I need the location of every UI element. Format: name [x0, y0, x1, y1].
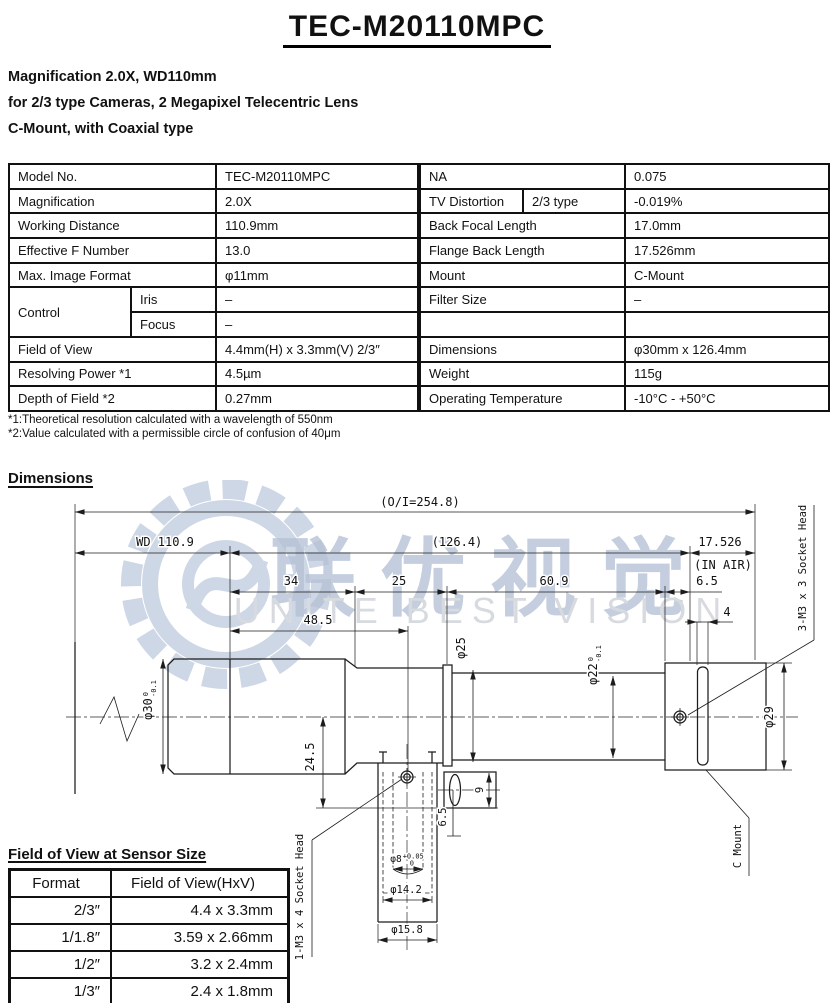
dim-label-60-9: 60.9 — [540, 574, 569, 588]
spec-cell-label: Back Focal Length — [420, 213, 625, 238]
footnotes: *1:Theoretical resolution calculated wit… — [8, 414, 340, 441]
break-symbol — [100, 697, 139, 741]
fov-cell-format: 1/2″ — [10, 951, 112, 978]
fov-header-format: Format — [10, 870, 112, 898]
dim-label-in-air: (IN AIR) — [694, 558, 752, 572]
page-title: TEC-M20110MPC — [283, 10, 551, 48]
spec-cell-label: NA — [420, 164, 625, 189]
spec-cell-label: Dimensions — [420, 337, 625, 362]
dim-label-overall: (O/I=254.8) — [380, 495, 459, 509]
table-row: Filter Size – — [420, 287, 829, 312]
dim-label-24-5: 24.5 — [303, 743, 317, 772]
spec-cell-label: Working Distance — [9, 213, 216, 238]
description-line: Magnification 2.0X, WD110mm — [8, 64, 358, 90]
label-socket-head-1m3: 1-M3 x 4 Socket Head — [294, 834, 306, 960]
dim-label-wd: WD 110.9 — [136, 535, 194, 549]
lens-description: Magnification 2.0X, WD110mm for 2/3 type… — [8, 64, 358, 142]
table-row: Working Distance 110.9mm — [9, 213, 418, 238]
fov-header-fov: Field of View(HxV) — [111, 870, 289, 898]
description-line: for 2/3 type Cameras, 2 Megapixel Telece… — [8, 90, 358, 116]
table-row: 1/1.8″ 3.59 x 2.66mm — [10, 924, 289, 951]
spec-cell-value: 2.0X — [216, 189, 418, 214]
spec-table: Model No. TEC-M20110MPC Magnification 2.… — [8, 163, 826, 412]
fov-cell-format: 1/3″ — [10, 978, 112, 1003]
spec-cell-value: 4.5µm — [216, 362, 418, 387]
table-row: 1/2″ 3.2 x 2.4mm — [10, 951, 289, 978]
table-row: Magnification 2.0X — [9, 189, 418, 214]
spec-table-left: Model No. TEC-M20110MPC Magnification 2.… — [8, 163, 419, 412]
dim-label-48-5: 48.5 — [304, 613, 333, 627]
dim-label-6-5: 6.5 — [696, 574, 718, 588]
spec-cell-value: -10°C - +50°C — [625, 386, 829, 411]
spec-cell-value: 17.0mm — [625, 213, 829, 238]
coaxial-port-side-view — [438, 772, 500, 808]
table-row: 2/3″ 4.4 x 3.3mm — [10, 897, 289, 924]
spec-cell-sublabel: 2/3 type — [523, 189, 625, 214]
spec-cell-value: C-Mount — [625, 263, 829, 288]
table-row: Back Focal Length 17.0mm — [420, 213, 829, 238]
spec-cell-label: Filter Size — [420, 287, 625, 312]
spec-cell-value: 0.27mm — [216, 386, 418, 411]
spec-cell-value: φ30mm x 126.4mm — [625, 337, 829, 362]
spec-cell-value: – — [216, 312, 418, 337]
dim-label-4: 4 — [723, 605, 730, 619]
spec-cell-value: 0.075 — [625, 164, 829, 189]
spec-cell-value: – — [625, 287, 829, 312]
dim-label-dia29: φ29 — [762, 706, 776, 728]
spec-cell-label: Magnification — [9, 189, 216, 214]
table-row: Max. Image Format φ11mm — [9, 263, 418, 288]
spec-cell-label: Control — [9, 287, 131, 336]
table-row — [420, 312, 829, 337]
spec-cell-label: Weight — [420, 362, 625, 387]
fov-cell-value: 4.4 x 3.3mm — [111, 897, 289, 924]
table-row: Flange Back Length 17.526mm — [420, 238, 829, 263]
table-row: Effective F Number 13.0 — [9, 238, 418, 263]
table-row: Depth of Field *2 0.27mm — [9, 386, 418, 411]
dim-label-dia15-8: φ15.8 — [391, 924, 423, 936]
spec-cell-label: Flange Back Length — [420, 238, 625, 263]
footnote-2: *2:Value calculated with a permissible c… — [8, 428, 340, 442]
table-row: NA 0.075 — [420, 164, 829, 189]
spec-cell-value: -0.019% — [625, 189, 829, 214]
spec-cell-value: TEC-M20110MPC — [216, 164, 418, 189]
spec-cell-label: Depth of Field *2 — [9, 386, 216, 411]
spec-cell-sublabel: Iris — [131, 287, 216, 312]
table-row: Format Field of View(HxV) — [10, 870, 289, 898]
fov-cell-value: 2.4 x 1.8mm — [111, 978, 289, 1003]
spec-cell-label: Operating Temperature — [420, 386, 625, 411]
spec-table-right: NA 0.075 TV Distortion 2/3 type -0.019% … — [419, 163, 830, 412]
table-row: 1/3″ 2.4 x 1.8mm — [10, 978, 289, 1003]
label-c-mount: C Mount — [732, 824, 744, 868]
spec-cell-label — [420, 312, 625, 337]
spec-cell-label: Mount — [420, 263, 625, 288]
spec-cell-sublabel: Focus — [131, 312, 216, 337]
spec-cell-label: Max. Image Format — [9, 263, 216, 288]
spec-cell-value: 4.4mm(H) x 3.3mm(V) 2/3″ — [216, 337, 418, 362]
fov-cell-value: 3.59 x 2.66mm — [111, 924, 289, 951]
fov-table: Format Field of View(HxV) 2/3″ 4.4 x 3.3… — [8, 868, 290, 1003]
dim-label-9: 9 — [474, 787, 486, 793]
dim-label-25: 25 — [392, 574, 406, 588]
dim-label-6-5-port: 6.5 — [437, 808, 449, 827]
dim-label-dia30: φ300-0.1 — [141, 680, 158, 720]
spec-cell-value: 110.9mm — [216, 213, 418, 238]
spec-cell-value: 13.0 — [216, 238, 418, 263]
table-row: Weight 115g — [420, 362, 829, 387]
dim-label-flange-back: 17.526 — [698, 535, 741, 549]
table-row: Resolving Power *1 4.5µm — [9, 362, 418, 387]
table-row: Mount C-Mount — [420, 263, 829, 288]
coaxial-port-outline — [378, 744, 437, 950]
spec-cell-value — [625, 312, 829, 337]
table-row: Operating Temperature -10°C - +50°C — [420, 386, 829, 411]
spec-cell-label: TV Distortion — [420, 189, 523, 214]
table-row: Model No. TEC-M20110MPC — [9, 164, 418, 189]
fov-cell-format: 2/3″ — [10, 897, 112, 924]
page-title-wrap: TEC-M20110MPC — [0, 10, 834, 48]
spec-cell-value: φ11mm — [216, 263, 418, 288]
spec-cell-label: Model No. — [9, 164, 216, 189]
spec-cell-label: Field of View — [9, 337, 216, 362]
table-row: TV Distortion 2/3 type -0.019% — [420, 189, 829, 214]
dim-label-dia14-2: φ14.2 — [390, 884, 422, 896]
spec-cell-value: 115g — [625, 362, 829, 387]
dim-label-dia25: φ25 — [454, 637, 468, 659]
description-line: C-Mount, with Coaxial type — [8, 116, 358, 142]
table-row: Dimensions φ30mm x 126.4mm — [420, 337, 829, 362]
spec-cell-label: Resolving Power *1 — [9, 362, 216, 387]
dim-label-body-length: (126.4) — [432, 535, 483, 549]
spec-cell-label: Effective F Number — [9, 238, 216, 263]
spec-cell-value: 17.526mm — [625, 238, 829, 263]
fov-table-title: Field of View at Sensor Size — [8, 846, 206, 863]
fov-cell-format: 1/1.8″ — [10, 924, 112, 951]
dim-label-dia22: φ220-0.1 — [586, 645, 603, 685]
footnote-1: *1:Theoretical resolution calculated wit… — [8, 414, 340, 428]
label-socket-head-3m3: 3-M3 x 3 Socket Head — [797, 505, 809, 631]
spec-cell-value: – — [216, 287, 418, 312]
dim-label-34: 34 — [284, 574, 298, 588]
table-row: Control Iris – — [9, 287, 418, 312]
table-row: Field of View 4.4mm(H) x 3.3mm(V) 2/3″ — [9, 337, 418, 362]
datasheet-page: TEC-M20110MPC Magnification 2.0X, WD110m… — [0, 0, 834, 1003]
fov-cell-value: 3.2 x 2.4mm — [111, 951, 289, 978]
